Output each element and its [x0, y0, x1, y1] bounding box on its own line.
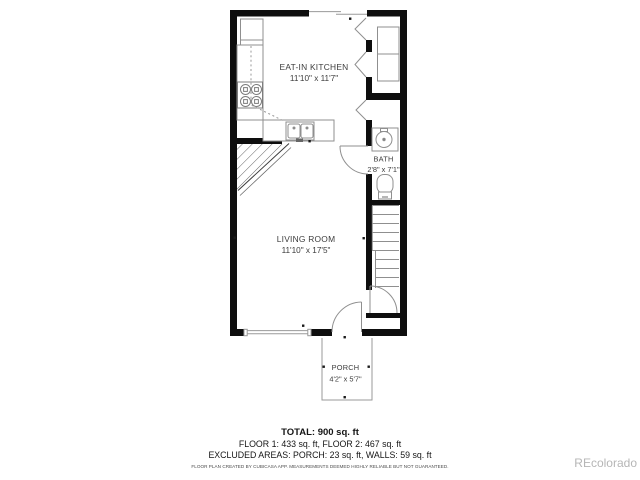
wall-left — [230, 10, 237, 336]
stove-icon — [238, 82, 263, 108]
porch-dims: 4'2" x 5'7" — [329, 375, 362, 384]
recolorado-watermark: REcolorado — [574, 456, 637, 470]
living-room-dims: 11'10" x 17'5" — [282, 246, 331, 255]
wall-interior-stub-3 — [366, 120, 372, 146]
window-icon — [244, 329, 311, 335]
wall-right — [400, 10, 407, 336]
bifold-door-icon — [356, 100, 366, 120]
door-swing-icon — [370, 286, 397, 313]
toilet-icon — [377, 175, 393, 200]
stairs-icon — [372, 206, 399, 289]
stair-treads — [372, 206, 399, 289]
bifold-door-icon — [355, 18, 366, 40]
floor-plan-page: EAT-IN KITCHEN 11'10" x 11'7" LIVING ROO… — [0, 0, 640, 480]
wall-top-left-segment — [230, 10, 309, 17]
wall-understair-closet-bottom — [366, 313, 400, 318]
bath-dims: 2'8" x 7'1" — [367, 165, 400, 174]
area-summary: TOTAL: 900 sq. ft FLOOR 1: 433 sq. ft, F… — [0, 428, 640, 470]
living-room-label: LIVING ROOM — [277, 234, 336, 244]
excluded-areas-text: EXCLUDED AREAS: PORCH: 23 sq. ft, WALLS:… — [0, 450, 640, 460]
bathroom-sink-icon — [372, 128, 398, 151]
total-area-text: TOTAL: 900 sq. ft — [0, 428, 640, 438]
door-swing-icon — [332, 302, 362, 332]
wall-bottom-segment-2 — [311, 329, 332, 336]
wall-bath-stairs-divider — [366, 200, 400, 205]
floor-areas-text: FLOOR 1: 433 sq. ft, FLOOR 2: 467 sq. ft — [0, 439, 640, 449]
refrigerator-icon — [241, 19, 264, 45]
floor-plan-drawing: EAT-IN KITCHEN 11'10" x 11'7" LIVING ROO… — [0, 0, 640, 480]
wall-interior-main — [366, 174, 372, 290]
bifold-door-icon — [355, 52, 366, 77]
wall-bottom-segment-1 — [230, 329, 244, 336]
bath-label: BATH — [374, 155, 394, 164]
bifold-doors — [355, 18, 366, 120]
disclaimer-text: FLOOR PLAN CREATED BY CUBICASA APP. MEAS… — [0, 464, 640, 470]
door-swing-icon — [340, 146, 368, 174]
wall-bottom-segment-3 — [362, 329, 407, 336]
wall-interior-stub-1 — [366, 40, 372, 52]
porch-label: PORCH — [332, 363, 360, 372]
closet-shelves-icon — [378, 27, 400, 81]
wall-closet-divider — [366, 93, 400, 100]
kitchen-sink-icon — [286, 122, 314, 142]
overhead-stair-hatch-icon — [237, 144, 291, 196]
kitchen-label: EAT-IN KITCHEN — [280, 62, 349, 72]
sliding-door-icon — [309, 12, 367, 15]
kitchen-dims: 11'10" x 11'7" — [290, 74, 338, 83]
